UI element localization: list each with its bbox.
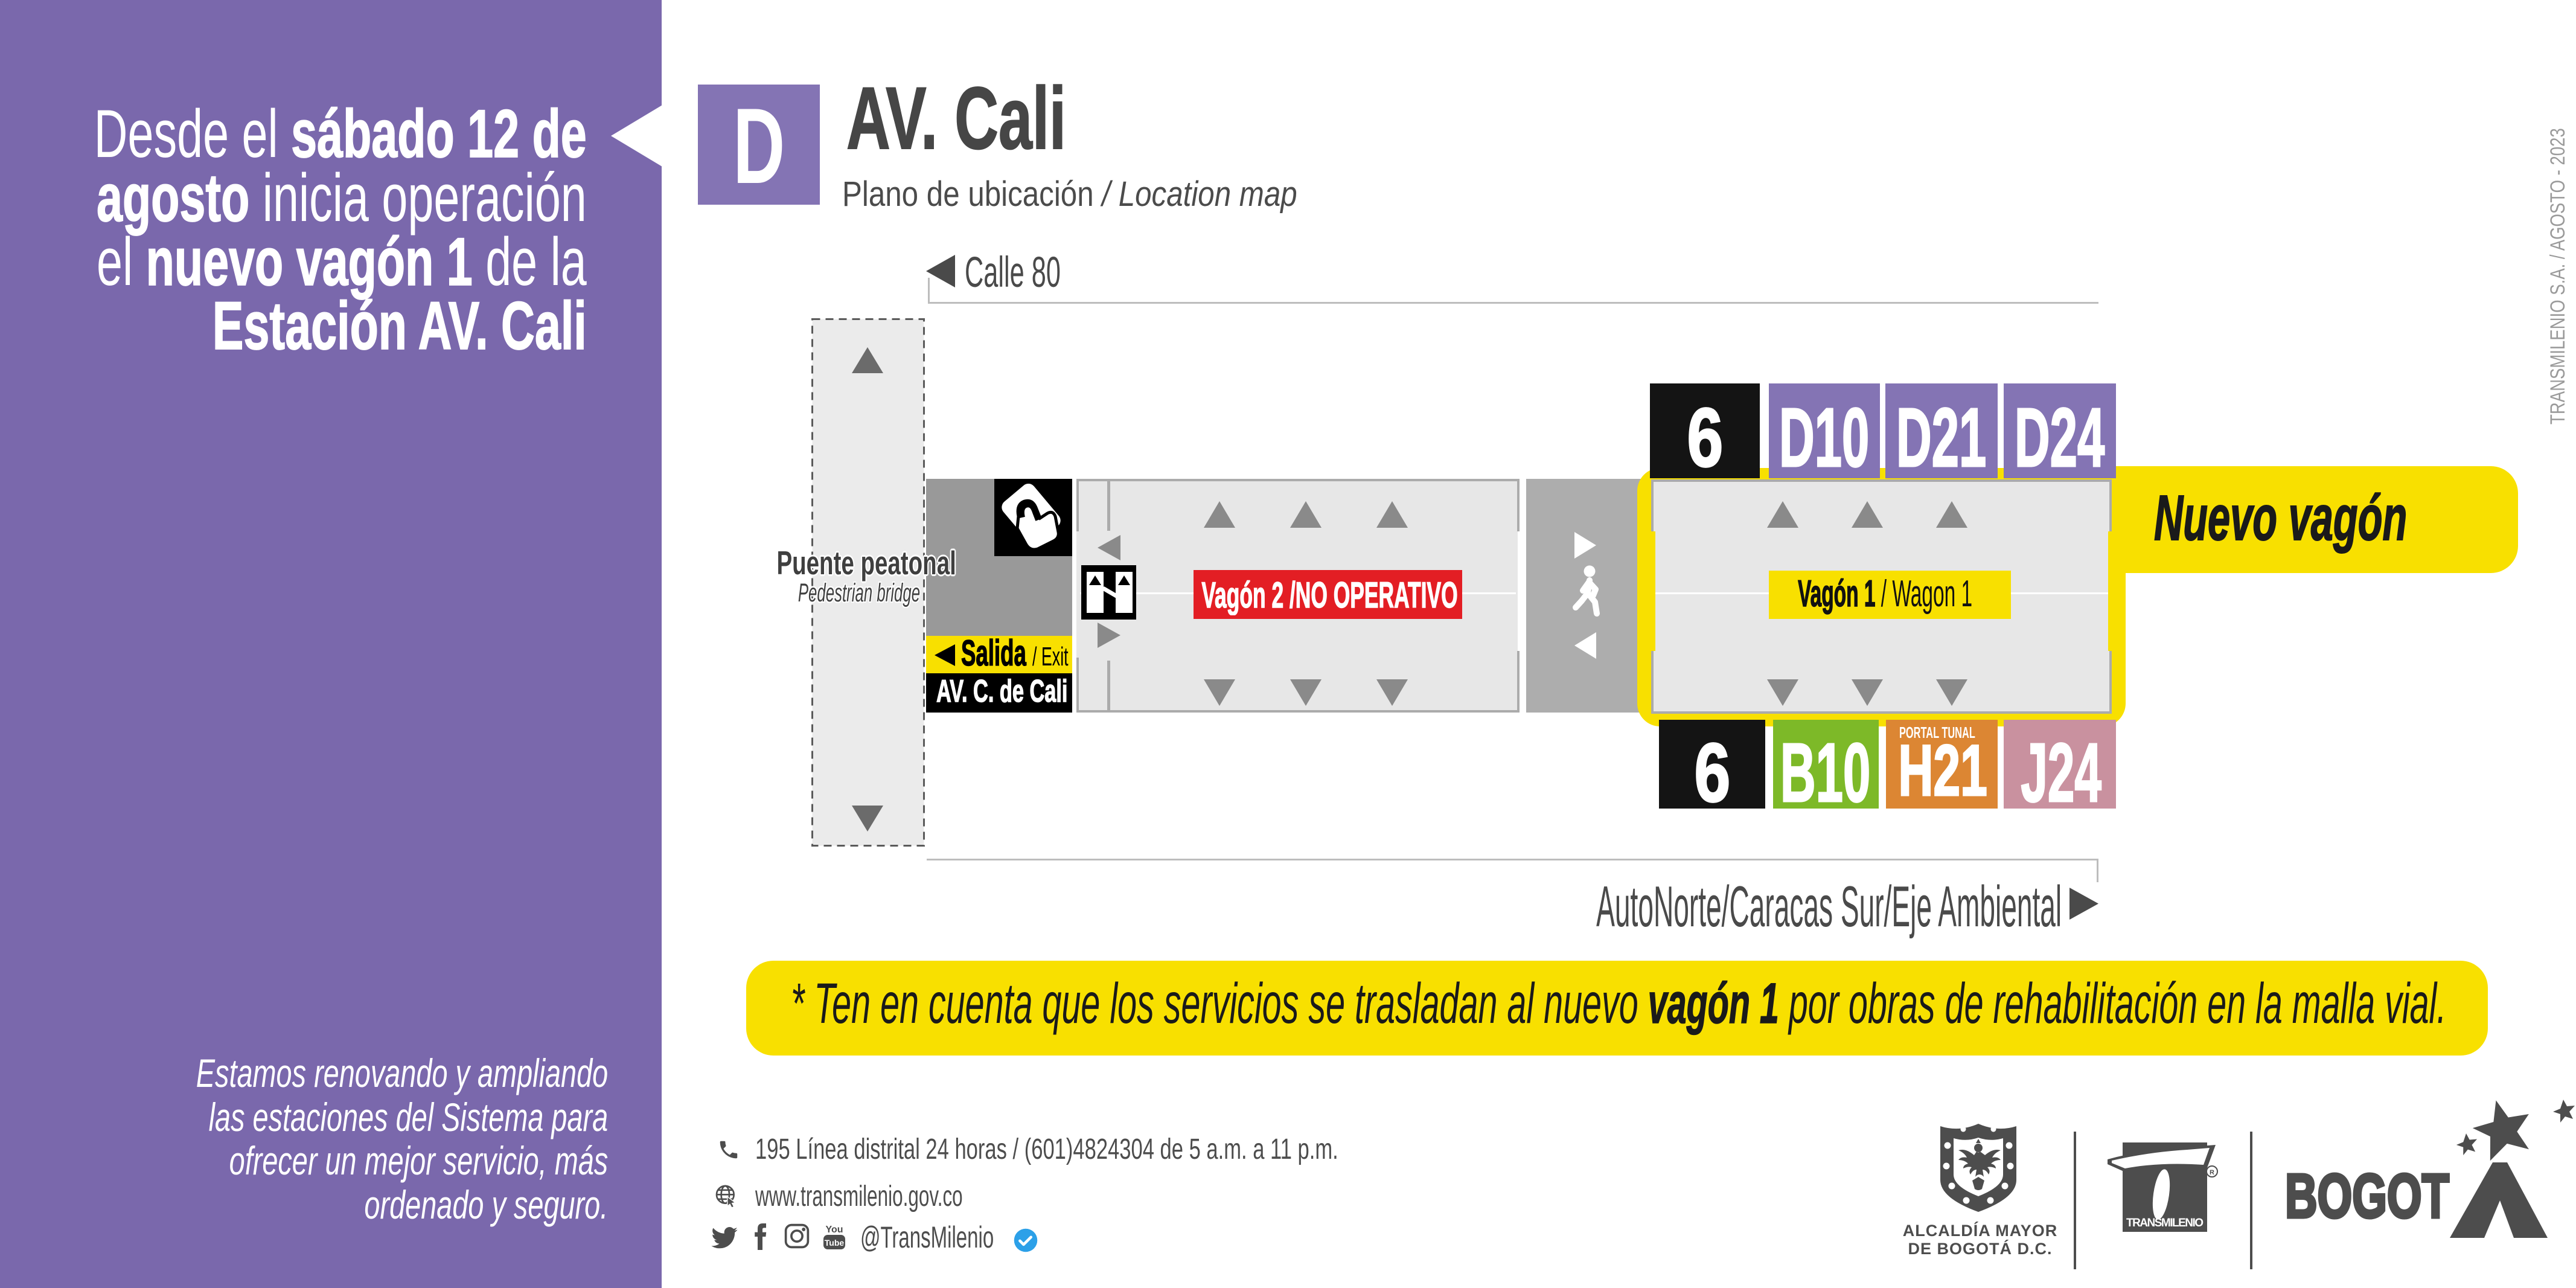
svg-text:Tube: Tube bbox=[825, 1238, 845, 1248]
svg-text:R: R bbox=[2210, 1169, 2214, 1176]
svg-text:TRANSMILENIO: TRANSMILENIO bbox=[2126, 1217, 2204, 1229]
svg-text:You: You bbox=[825, 1225, 843, 1235]
